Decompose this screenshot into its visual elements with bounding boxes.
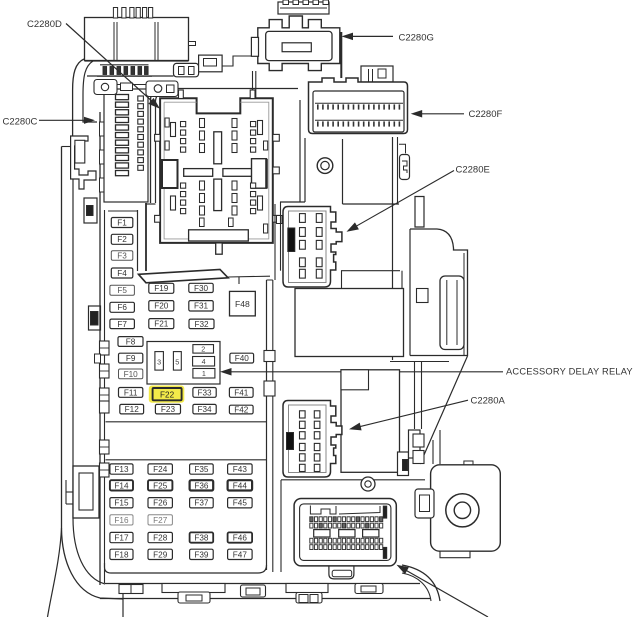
svg-text:F17: F17 <box>114 533 129 542</box>
svg-text:F48: F48 <box>235 299 250 309</box>
svg-text:ACCESSORY DELAY RELAY: ACCESSORY DELAY RELAY <box>506 367 633 377</box>
svg-text:F9: F9 <box>126 354 136 363</box>
svg-text:F27: F27 <box>153 516 168 525</box>
svg-text:F7: F7 <box>117 320 127 329</box>
svg-text:F43: F43 <box>233 465 248 474</box>
svg-text:F35: F35 <box>194 465 209 474</box>
svg-text:F25: F25 <box>153 481 168 490</box>
svg-text:F24: F24 <box>153 465 168 474</box>
svg-text:F36: F36 <box>194 481 209 490</box>
svg-text:F20: F20 <box>154 302 169 311</box>
svg-text:C2280A: C2280A <box>471 396 506 407</box>
svg-text:F28: F28 <box>153 533 168 542</box>
svg-text:F42: F42 <box>234 405 249 414</box>
svg-text:3: 3 <box>157 358 161 367</box>
svg-text:F2: F2 <box>117 235 127 244</box>
svg-text:F34: F34 <box>197 405 212 414</box>
svg-text:F44: F44 <box>233 481 248 490</box>
svg-text:F3: F3 <box>117 251 127 260</box>
svg-text:F29: F29 <box>153 550 168 559</box>
svg-text:F10: F10 <box>124 370 139 379</box>
svg-text:F19: F19 <box>154 284 169 293</box>
svg-text:F22: F22 <box>160 391 175 400</box>
svg-text:F41: F41 <box>234 388 249 397</box>
svg-text:C2280D: C2280D <box>27 19 62 30</box>
svg-text:F39: F39 <box>194 550 209 559</box>
svg-text:C2280F: C2280F <box>469 109 503 120</box>
svg-text:F18: F18 <box>114 550 129 559</box>
svg-text:F40: F40 <box>235 354 250 363</box>
svg-text:F46: F46 <box>233 533 248 542</box>
svg-text:F15: F15 <box>114 499 129 508</box>
svg-text:F14: F14 <box>114 481 129 490</box>
svg-text:F26: F26 <box>153 499 168 508</box>
svg-text:F8: F8 <box>126 337 136 346</box>
svg-text:F6: F6 <box>117 303 127 312</box>
svg-text:2: 2 <box>201 345 205 354</box>
svg-text:5: 5 <box>175 358 179 367</box>
svg-text:F23: F23 <box>161 405 176 414</box>
svg-text:F1: F1 <box>117 218 127 227</box>
svg-text:C2280E: C2280E <box>456 165 490 176</box>
svg-text:4: 4 <box>202 357 206 366</box>
svg-text:F32: F32 <box>194 320 209 329</box>
svg-text:F12: F12 <box>125 405 140 414</box>
svg-text:C2280C: C2280C <box>3 117 38 128</box>
svg-text:F33: F33 <box>197 388 212 397</box>
svg-text:F11: F11 <box>124 388 138 397</box>
svg-text:F31: F31 <box>194 302 209 311</box>
svg-text:F47: F47 <box>233 550 248 559</box>
svg-text:1: 1 <box>202 369 206 378</box>
svg-text:F16: F16 <box>114 516 129 525</box>
svg-text:F30: F30 <box>194 284 209 293</box>
svg-text:F38: F38 <box>194 533 209 542</box>
svg-text:C2280G: C2280G <box>399 33 434 44</box>
svg-text:F4: F4 <box>117 269 127 278</box>
svg-text:F37: F37 <box>194 499 209 508</box>
svg-text:F13: F13 <box>114 465 129 474</box>
svg-text:F5: F5 <box>117 286 127 295</box>
svg-text:F21: F21 <box>154 320 169 329</box>
svg-text:F45: F45 <box>233 499 248 508</box>
